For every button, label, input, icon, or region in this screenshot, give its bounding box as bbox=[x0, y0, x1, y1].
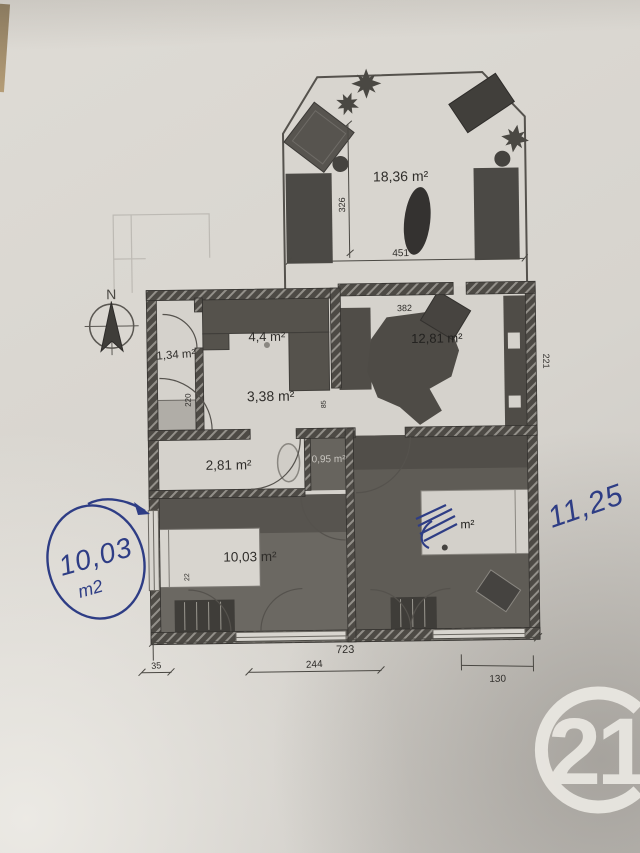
dim-bedroom-right-width: 130 bbox=[489, 674, 506, 685]
fridge-icon bbox=[338, 308, 371, 390]
bed-right-icon bbox=[421, 489, 532, 555]
bedroom-right-top-shade bbox=[350, 433, 530, 470]
living-area-label: 12,81 m² bbox=[411, 330, 463, 346]
wardrobe-notch bbox=[509, 395, 521, 407]
dim-terrace-width: 451 bbox=[392, 248, 409, 259]
dim-bedroom-left-width: 244 bbox=[306, 659, 324, 671]
living-wardrobe-icon bbox=[503, 295, 527, 429]
compass-north-label: N bbox=[106, 286, 116, 302]
closet-area-label: 0,95 m² bbox=[312, 454, 347, 465]
kitchen-area-label: 4,4 m² bbox=[248, 329, 286, 345]
north-compass-icon: N bbox=[84, 286, 139, 356]
dim-entrance-door: 220 bbox=[184, 393, 193, 407]
faint-structure-lines bbox=[113, 214, 210, 293]
radiator-icon bbox=[175, 599, 235, 632]
bedroom-right-unit-label: m² bbox=[460, 517, 474, 531]
hand-note-right: 11,25 bbox=[544, 478, 628, 535]
washbasin-icon bbox=[277, 444, 300, 482]
logo-number: 21 bbox=[548, 699, 640, 805]
apartment: 4,4 m² 1,34 m² 3,38 m² 12,81 m² 2,81 m² … bbox=[145, 281, 555, 645]
hand-arrowhead bbox=[134, 502, 150, 515]
terrace-sofa-left-icon bbox=[286, 173, 333, 264]
dim-living-side: 221 bbox=[541, 354, 551, 369]
dim-bed: 22 bbox=[184, 573, 191, 581]
bathroom-area-label: 2,81 m² bbox=[206, 457, 252, 473]
dim-terrace-depth: 326 bbox=[337, 197, 347, 212]
dim-total-width: 723 bbox=[336, 644, 355, 656]
terrace: 451 326 18,36 m² bbox=[282, 63, 534, 293]
photographed-floor-plan: 451 326 18,36 m² bbox=[0, 0, 640, 853]
hand-circled-unit: m2 bbox=[76, 576, 106, 602]
hand-circled-value: 10,03 bbox=[55, 531, 136, 581]
terrace-area-label: 18,36 m² bbox=[373, 168, 429, 185]
bedroom-left-area-label: 10,03 m² bbox=[223, 549, 277, 565]
floor-plan-drawing: 451 326 18,36 m² bbox=[0, 0, 640, 853]
entrance-area-label: 3,38 m² bbox=[247, 388, 295, 405]
century21-logo: 21 bbox=[541, 693, 640, 807]
wardrobe-notch bbox=[508, 332, 520, 348]
dim-living-width: 382 bbox=[397, 303, 412, 313]
dim-offset-left: 35 bbox=[151, 660, 162, 671]
dim-hall: 85 bbox=[321, 400, 328, 408]
terrace-sofa-right-icon bbox=[473, 167, 519, 260]
